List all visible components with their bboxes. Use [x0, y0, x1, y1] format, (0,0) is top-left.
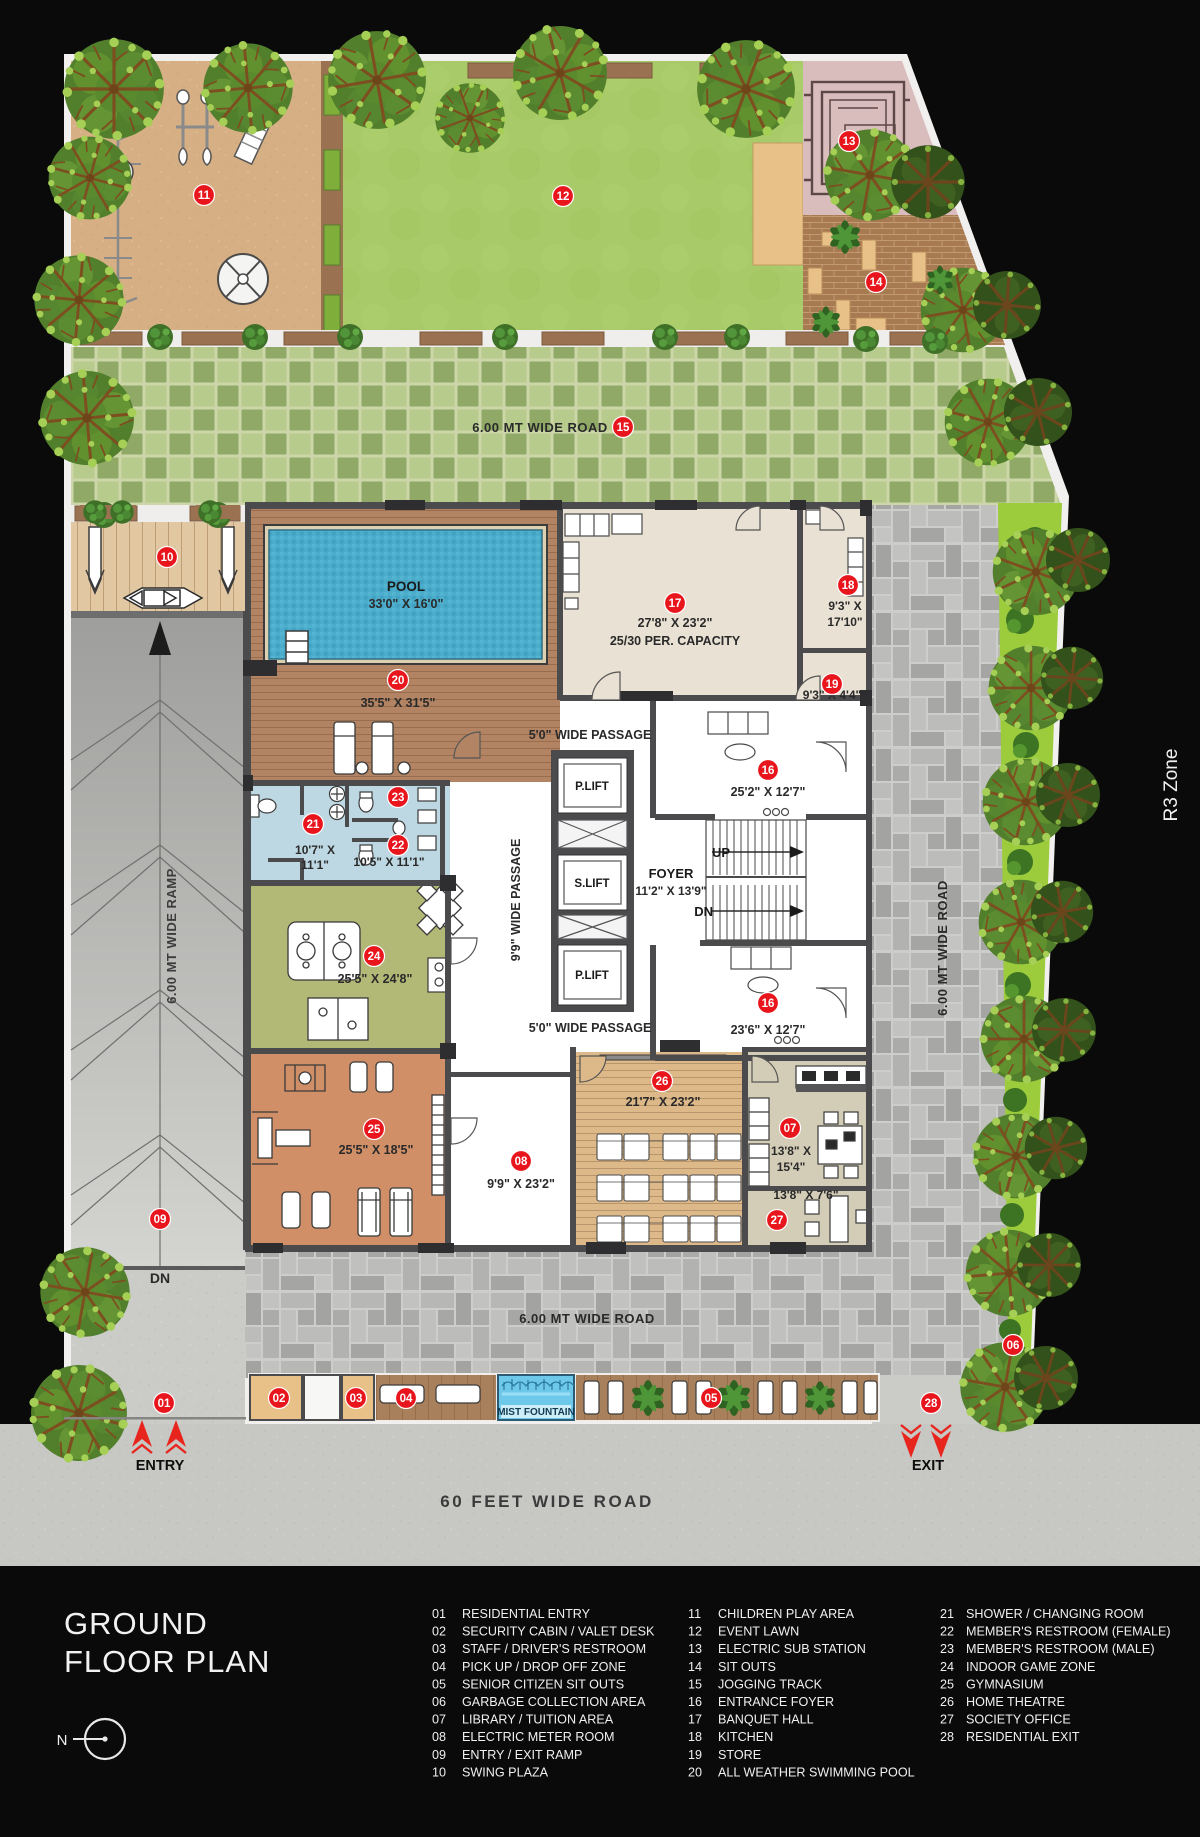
svg-text:GROUND: GROUND [64, 1606, 208, 1641]
svg-text:25: 25 [940, 1677, 954, 1691]
svg-text:15'4": 15'4" [777, 1160, 806, 1174]
svg-text:SWING PLAZA: SWING PLAZA [462, 1765, 549, 1779]
svg-text:GYMNASIUM: GYMNASIUM [966, 1677, 1044, 1691]
svg-text:11: 11 [198, 190, 211, 202]
svg-text:11'2" X 13'9": 11'2" X 13'9" [635, 884, 706, 898]
svg-text:27: 27 [771, 1215, 784, 1227]
svg-text:15: 15 [688, 1677, 702, 1691]
svg-text:ELECTRIC METER ROOM: ELECTRIC METER ROOM [462, 1730, 615, 1744]
svg-text:06: 06 [1007, 1340, 1020, 1352]
svg-text:16: 16 [688, 1695, 702, 1709]
svg-text:STAFF / DRIVER'S RESTROOM: STAFF / DRIVER'S RESTROOM [462, 1642, 646, 1656]
svg-text:21'7" X 23'2": 21'7" X 23'2" [626, 1095, 701, 1109]
svg-text:KITCHEN: KITCHEN [718, 1730, 773, 1744]
svg-text:09: 09 [432, 1748, 446, 1762]
svg-text:SIT OUTS: SIT OUTS [718, 1660, 776, 1674]
svg-text:24: 24 [940, 1660, 954, 1674]
svg-text:25'2" X 12'7": 25'2" X 12'7" [731, 785, 806, 799]
svg-text:17: 17 [688, 1713, 702, 1727]
svg-text:ENTRY: ENTRY [136, 1458, 185, 1474]
svg-text:13'8" X: 13'8" X [771, 1144, 811, 1158]
svg-text:35'5" X 31'5": 35'5" X 31'5" [361, 696, 436, 710]
svg-text:02: 02 [273, 1393, 286, 1405]
svg-text:21: 21 [307, 819, 320, 831]
svg-text:20: 20 [688, 1765, 702, 1779]
svg-text:S.LIFT: S.LIFT [574, 878, 609, 890]
svg-text:25/30 PER. CAPACITY: 25/30 PER. CAPACITY [610, 634, 741, 648]
svg-text:6.00 MT WIDE ROAD: 6.00 MT WIDE ROAD [472, 420, 608, 435]
svg-text:11: 11 [688, 1607, 701, 1621]
svg-text:16: 16 [762, 998, 775, 1010]
svg-text:33'0" X 16'0": 33'0" X 16'0" [369, 597, 444, 611]
svg-text:UP: UP [712, 845, 730, 860]
svg-text:SECURITY CABIN / VALET DESK: SECURITY CABIN / VALET DESK [462, 1625, 655, 1639]
svg-text:5'0" WIDE PASSAGE: 5'0" WIDE PASSAGE [529, 1021, 652, 1035]
svg-text:9'9" X 23'2": 9'9" X 23'2" [487, 1177, 555, 1191]
svg-text:MIST FOUNTAIN: MIST FOUNTAIN [497, 1407, 575, 1418]
svg-text:RESIDENTIAL EXIT: RESIDENTIAL EXIT [966, 1730, 1080, 1744]
svg-text:05: 05 [705, 1393, 718, 1405]
svg-text:26: 26 [656, 1076, 669, 1088]
svg-text:FLOOR PLAN: FLOOR PLAN [64, 1644, 270, 1679]
svg-text:60 FEET WIDE ROAD: 60 FEET WIDE ROAD [440, 1492, 653, 1511]
svg-text:12: 12 [688, 1625, 702, 1639]
svg-text:27: 27 [940, 1713, 954, 1727]
svg-text:SHOWER / CHANGING ROOM: SHOWER / CHANGING ROOM [966, 1607, 1144, 1621]
svg-text:19: 19 [826, 679, 839, 691]
svg-text:23: 23 [392, 792, 405, 804]
svg-text:P.LIFT: P.LIFT [575, 970, 609, 982]
svg-text:25'5" X 18'5": 25'5" X 18'5" [339, 1143, 414, 1157]
svg-text:21: 21 [940, 1607, 954, 1621]
svg-text:23: 23 [940, 1642, 954, 1656]
svg-text:14: 14 [870, 277, 883, 289]
svg-text:GARBAGE COLLECTION AREA: GARBAGE COLLECTION AREA [462, 1695, 646, 1709]
svg-text:08: 08 [432, 1730, 446, 1744]
svg-text:22: 22 [940, 1625, 954, 1639]
svg-text:ENTRANCE FOYER: ENTRANCE FOYER [718, 1695, 834, 1709]
svg-text:13: 13 [843, 136, 856, 148]
svg-text:6.00 MT WIDE ROAD: 6.00 MT WIDE ROAD [935, 880, 950, 1016]
svg-text:EXIT: EXIT [912, 1458, 944, 1474]
svg-text:SENIOR CITIZEN SIT OUTS: SENIOR CITIZEN SIT OUTS [462, 1677, 624, 1691]
svg-text:13'8" X 7'6": 13'8" X 7'6" [773, 1188, 838, 1202]
svg-text:9'9" WIDE PASSAGE: 9'9" WIDE PASSAGE [509, 839, 523, 962]
svg-text:SOCIETY OFFICE: SOCIETY OFFICE [966, 1713, 1071, 1727]
svg-text:01: 01 [432, 1607, 446, 1621]
svg-text:PICK UP / DROP OFF ZONE: PICK UP / DROP OFF ZONE [462, 1660, 626, 1674]
svg-text:MEMBER'S RESTROOM (MALE): MEMBER'S RESTROOM (MALE) [966, 1642, 1155, 1656]
svg-text:20: 20 [392, 675, 405, 687]
svg-text:19: 19 [688, 1748, 702, 1762]
svg-text:28: 28 [940, 1730, 954, 1744]
svg-text:STORE: STORE [718, 1748, 761, 1762]
svg-text:15: 15 [617, 422, 630, 434]
svg-text:03: 03 [350, 1393, 363, 1405]
svg-text:10'7" X: 10'7" X [295, 843, 335, 857]
svg-text:02: 02 [432, 1625, 446, 1639]
svg-text:17: 17 [669, 598, 682, 610]
svg-text:POOL: POOL [387, 579, 425, 594]
svg-text:18: 18 [688, 1730, 702, 1744]
svg-text:HOME THEATRE: HOME THEATRE [966, 1695, 1065, 1709]
svg-text:6.00 MT WIDE ROAD: 6.00 MT WIDE ROAD [519, 1311, 655, 1326]
svg-text:24: 24 [368, 951, 381, 963]
svg-text:04: 04 [432, 1660, 446, 1674]
svg-text:22: 22 [392, 840, 405, 852]
svg-text:ELECTRIC SUB STATION: ELECTRIC SUB STATION [718, 1642, 866, 1656]
svg-text:07: 07 [784, 1123, 797, 1135]
svg-text:26: 26 [940, 1695, 954, 1709]
svg-text:RESIDENTIAL ENTRY: RESIDENTIAL ENTRY [462, 1607, 591, 1621]
svg-text:23'6" X 12'7": 23'6" X 12'7" [731, 1023, 806, 1037]
svg-text:28: 28 [925, 1398, 938, 1410]
svg-text:10'5" X 11'1": 10'5" X 11'1" [353, 855, 424, 869]
svg-text:17'10": 17'10" [827, 615, 862, 629]
svg-text:N: N [57, 1732, 68, 1749]
svg-text:MEMBER'S RESTROOM (FEMALE): MEMBER'S RESTROOM (FEMALE) [966, 1625, 1171, 1639]
svg-text:25'5" X 24'8": 25'5" X 24'8" [338, 972, 413, 986]
svg-text:10: 10 [161, 552, 174, 564]
svg-text:9'3" X: 9'3" X [828, 599, 861, 613]
svg-text:06: 06 [432, 1695, 446, 1709]
svg-text:13: 13 [688, 1642, 702, 1656]
svg-text:INDOOR GAME ZONE: INDOOR GAME ZONE [966, 1660, 1095, 1674]
svg-text:LIBRARY / TUITION AREA: LIBRARY / TUITION AREA [462, 1713, 614, 1727]
svg-text:CHILDREN PLAY AREA: CHILDREN PLAY AREA [718, 1607, 855, 1621]
svg-text:10: 10 [432, 1765, 446, 1779]
svg-text:07: 07 [432, 1713, 446, 1727]
svg-text:JOGGING TRACK: JOGGING TRACK [718, 1677, 823, 1691]
svg-text:DN: DN [150, 1270, 170, 1286]
svg-text:R3 Zone: R3 Zone [1161, 749, 1182, 822]
svg-text:EVENT LAWN: EVENT LAWN [718, 1625, 799, 1639]
svg-text:09: 09 [154, 1214, 167, 1226]
svg-text:16: 16 [762, 765, 775, 777]
svg-text:25: 25 [368, 1124, 381, 1136]
svg-text:ALL WEATHER SWIMMING POOL: ALL WEATHER SWIMMING POOL [718, 1765, 915, 1779]
svg-text:6.00 MT WIDE RAMP: 6.00 MT WIDE RAMP [164, 868, 179, 1004]
svg-text:P.LIFT: P.LIFT [575, 781, 609, 793]
svg-text:14: 14 [688, 1660, 702, 1674]
svg-text:08: 08 [515, 1156, 528, 1168]
svg-text:03: 03 [432, 1642, 446, 1656]
svg-text:01: 01 [158, 1398, 171, 1410]
svg-text:ENTRY / EXIT RAMP: ENTRY / EXIT RAMP [462, 1748, 582, 1762]
svg-text:18: 18 [842, 580, 855, 592]
svg-text:BANQUET HALL: BANQUET HALL [718, 1713, 814, 1727]
svg-text:27'8" X 23'2": 27'8" X 23'2" [638, 616, 713, 630]
svg-text:11'1": 11'1" [301, 858, 329, 872]
svg-text:05: 05 [432, 1677, 446, 1691]
svg-text:5'0" WIDE PASSAGE: 5'0" WIDE PASSAGE [529, 728, 652, 742]
svg-text:DN: DN [694, 904, 713, 919]
svg-text:12: 12 [557, 191, 570, 203]
svg-text:04: 04 [400, 1393, 413, 1405]
svg-text:FOYER: FOYER [649, 866, 694, 881]
